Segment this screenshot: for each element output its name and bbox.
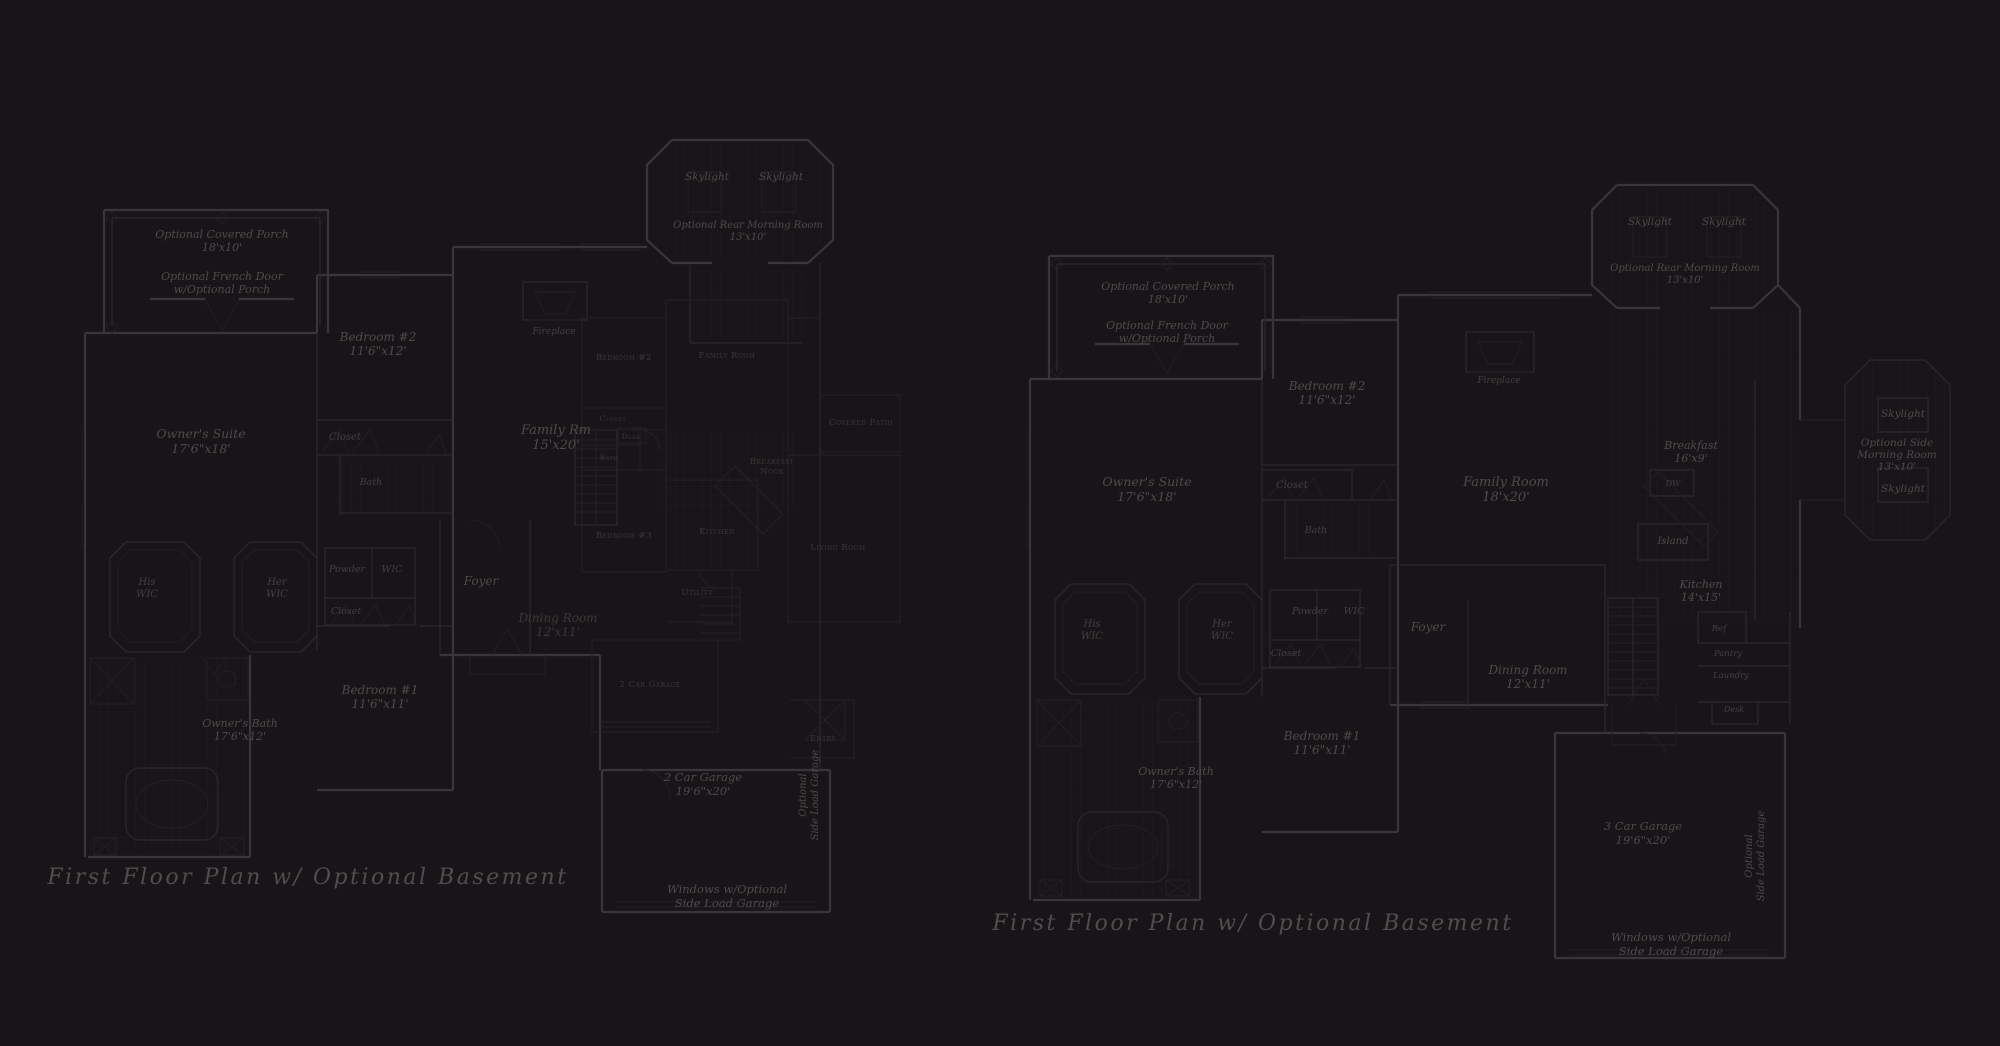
label-right-island: Island	[1656, 536, 1688, 547]
label-overlay-closet: Closet	[600, 414, 627, 423]
label-overlay-bath: Bath	[600, 453, 619, 462]
label-right-foyer: Foyer	[1410, 620, 1447, 634]
label-overlay-covered-patio: Covered Patio	[829, 418, 893, 428]
label-left-owners-suite: Owner's Suite17'6"x18'	[156, 426, 245, 456]
label-right-dw: DW	[1665, 479, 1681, 488]
floor-plan-canvas: Optional Covered Porch18'x10'Optional Fr…	[0, 0, 2000, 1046]
label-right-skylight-2: Skylight	[1702, 216, 1747, 228]
label-left-his-wic: HisWIC	[136, 577, 158, 600]
label-right-laundry: Laundry	[1712, 671, 1749, 681]
label-right-her-wic: HerWIC	[1211, 619, 1233, 642]
blueprint-page: Optional Covered Porch18'x10'Optional Fr…	[0, 0, 2000, 1046]
label-overlay-kitchen: Kitchen	[699, 527, 735, 537]
label-right-caption: First Floor Plan w/ Optional Basement	[991, 911, 1513, 936]
label-left-her-wic: HerWIC	[266, 577, 288, 600]
label-right-his-wic: HisWIC	[1081, 619, 1103, 642]
label-right-3-car-garage: 3 Car Garage19'6"x20'	[1604, 819, 1683, 847]
label-right-kitchen: Kitchen14'x15'	[1679, 578, 1723, 604]
label-overlay-living-room: Living Room	[810, 543, 865, 553]
label-left-owners-bath: Owner's Bath17'6"x12'	[202, 717, 278, 743]
label-right-skylight-1: Skylight	[1628, 216, 1673, 228]
label-left-bedroom-2: Bedroom #211'6"x12'	[339, 330, 417, 358]
label-right-closet-bedroom2: Closet	[1276, 480, 1309, 491]
label-left-optional-side-load-garage: OptionalSide Load Garage	[798, 750, 821, 841]
label-left-windows-side-load: Windows w/OptionalSide Load Garage	[667, 882, 787, 910]
label-right-bedroom-2: Bedroom #211'6"x12'	[1288, 379, 1366, 407]
label-left-bath: Bath	[359, 477, 383, 488]
label-right-fireplace: Fireplace	[1476, 376, 1520, 386]
label-left-caption: First Floor Plan w/ Optional Basement	[46, 865, 568, 890]
label-right-windows-side-load: Windows w/OptionalSide Load Garage	[1611, 930, 1731, 958]
label-right-closet-hall: Closet	[1271, 648, 1302, 659]
label-right-desk: Desk	[1723, 705, 1744, 714]
label-left-bedroom-1: Bedroom #111'6"x11'	[341, 683, 419, 711]
label-right-optional-french-door: Optional French Doorw/Optional Porch	[1106, 319, 1229, 345]
label-right-side-skylight-bottom: Skylight	[1881, 483, 1926, 495]
label-right-side-skylight-top: Skylight	[1881, 408, 1926, 420]
label-right-powder: Powder	[1291, 606, 1330, 617]
label-left-closet-bedroom2: Closet	[329, 432, 362, 443]
label-right-ref: Ref	[1711, 624, 1728, 634]
label-overlay-desk: Desk	[622, 432, 641, 441]
label-overlay-utility: Utility	[681, 588, 713, 598]
label-left-skylight-1: Skylight	[685, 171, 730, 183]
label-right-wic: WIC	[1344, 606, 1366, 617]
label-left-closet-hall: Closet	[331, 606, 362, 617]
label-left-wic: WIC	[382, 564, 404, 575]
label-right-owners-bath: Owner's Bath17'6"x12'	[1138, 765, 1214, 791]
label-left-optional-covered-porch: Optional Covered Porch18'x10'	[155, 228, 288, 254]
label-left-powder: Powder	[328, 564, 367, 575]
label-right-optional-covered-porch: Optional Covered Porch18'x10'	[1101, 280, 1234, 306]
label-left-fireplace: Fireplace	[531, 327, 575, 337]
label-right-bath: Bath	[1304, 525, 1328, 536]
label-left-skylight-2: Skylight	[759, 171, 804, 183]
label-right-family-room: Family Room18'x20'	[1462, 475, 1549, 505]
label-right-bedroom-1: Bedroom #111'6"x11'	[1283, 729, 1361, 757]
label-left-family-rm: Family Rm15'x20'	[520, 423, 591, 453]
label-left-foyer: Foyer	[463, 574, 500, 588]
label-left-2-car-garage: 2 Car Garage19'6"x20'	[663, 770, 743, 798]
label-overlay-family-room: Family Room	[699, 351, 756, 361]
label-right-optional-side-load-garage: OptionalSide Load Garage	[1744, 811, 1767, 902]
label-overlay-bedroom-3: Bedroom #3	[596, 531, 652, 541]
label-overlay-2-car-garage: 2 Car Garage	[619, 680, 680, 690]
label-left-optional-french-door: Optional French Doorw/Optional Porch	[161, 270, 284, 296]
label-overlay-bedroom-2: Bedroom #2	[596, 353, 652, 363]
label-right-pantry: Pantry	[1713, 649, 1742, 659]
label-right-owners-suite: Owner's Suite17'6"x18'	[1102, 474, 1191, 504]
label-right-dining-room: Dining Room12'x11'	[1487, 663, 1567, 691]
label-overlay-entry: Entry	[810, 734, 836, 743]
